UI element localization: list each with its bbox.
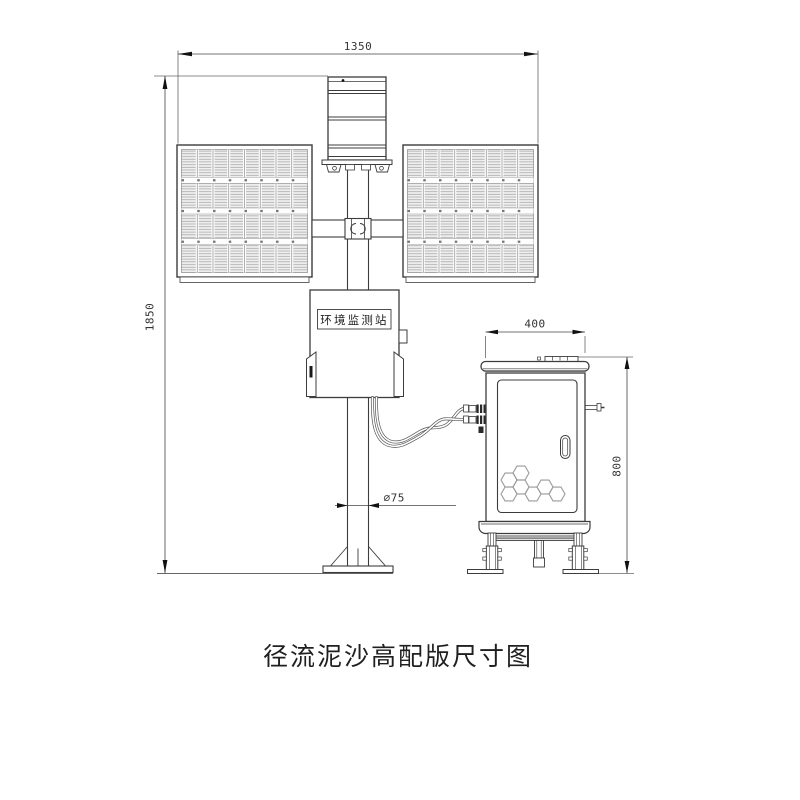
pole-clamp [345,219,371,240]
dimension-drawing: 1350 1850 [0,0,800,800]
dim-top-width-value: 1350 [344,40,373,53]
solar-panel-right [403,145,538,283]
station-label: 环境监测站 [320,313,389,327]
rain-gauge-cylinder [322,77,392,172]
drain-pipe [534,541,545,568]
control-box-cable [372,398,463,447]
leg-rail [490,536,581,541]
dim-pole-height-value: 1850 [144,303,157,332]
pole-base [323,547,393,573]
sensor-dot [342,79,345,82]
dim-cabinet-width-value: 400 [524,318,545,331]
side-tab [399,330,407,343]
cable-glands [464,405,486,434]
drawing-title: 径流泥沙高配版尺寸图 [263,643,533,671]
dim-pole-diameter-value: ∅75 [384,492,405,505]
drawing-canvas: 1350 1850 [0,0,800,800]
cabinet-bottom-frame [479,522,590,534]
flange-slot [310,366,313,378]
solar-panel-left [177,145,312,283]
side-rod [586,404,605,412]
sampling-cabinet [468,357,605,574]
cabinet-lid [481,357,589,372]
dim-cabinet-width: 400 [486,318,586,359]
dim-cabinet-height: 800 [578,357,634,574]
station-name-plate: 环境监测站 [318,310,392,330]
cylinder-feet [327,165,390,173]
dim-cabinet-height-value: 800 [611,455,624,476]
control-box: 环境监测站 [307,290,408,398]
dim-pole-diameter-callout: ∅75 [335,492,456,509]
